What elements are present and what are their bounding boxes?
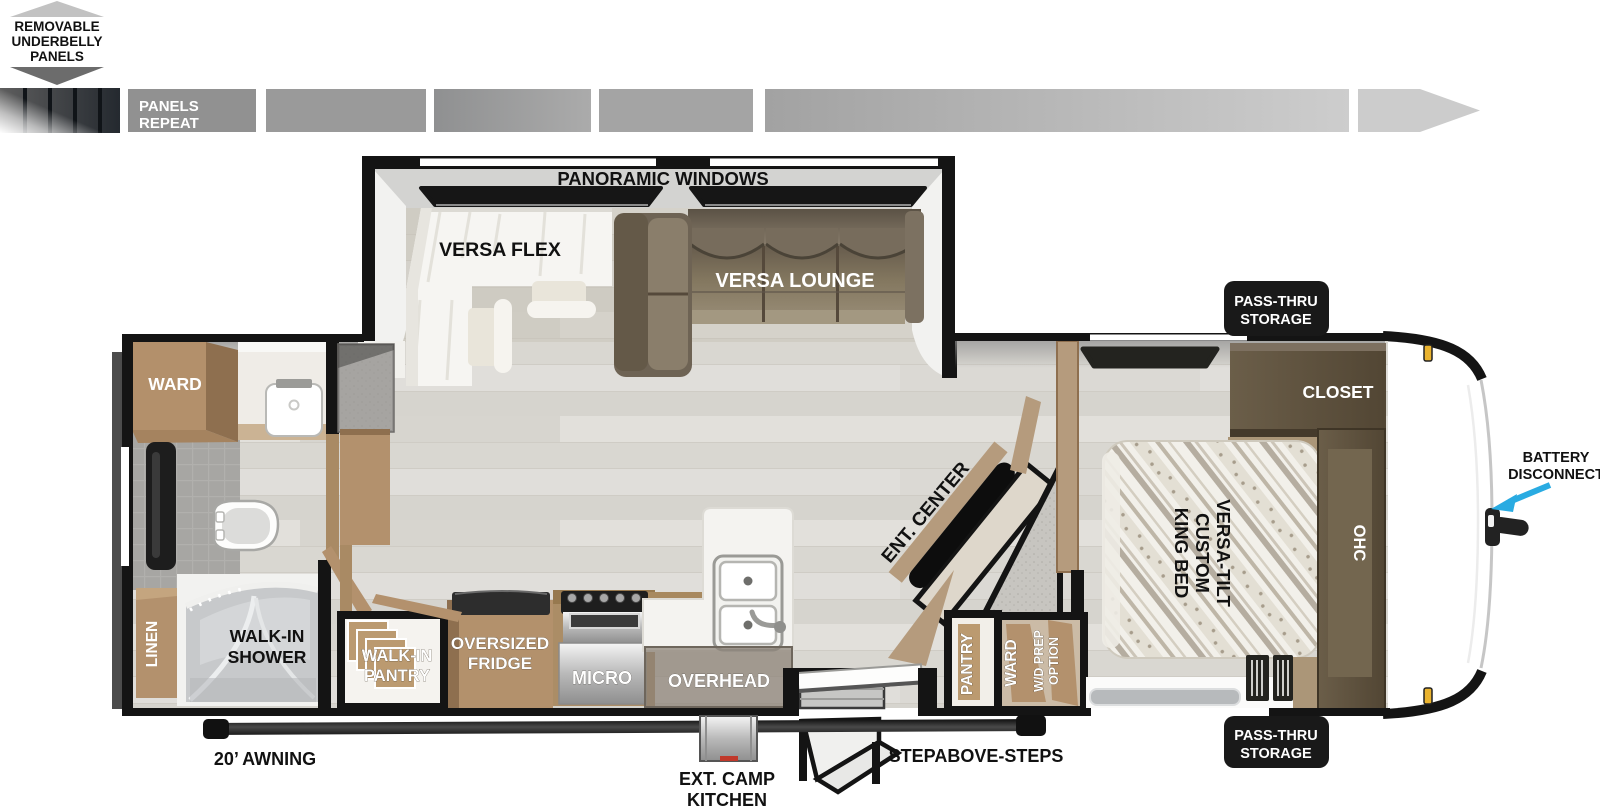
svg-text:BATTERY: BATTERY bbox=[1523, 450, 1590, 466]
svg-text:REPEAT: REPEAT bbox=[139, 115, 199, 132]
svg-text:PANORAMIC WINDOWS: PANORAMIC WINDOWS bbox=[557, 168, 768, 189]
svg-text:CUSTOM: CUSTOM bbox=[1192, 513, 1213, 593]
svg-text:W/D PREP: W/D PREP bbox=[1032, 630, 1046, 692]
svg-text:PASS-THRU: PASS-THRU bbox=[1234, 728, 1318, 744]
svg-text:STORAGE: STORAGE bbox=[1240, 312, 1312, 328]
svg-text:FRIDGE: FRIDGE bbox=[468, 654, 532, 673]
svg-text:CLOSET: CLOSET bbox=[1303, 382, 1374, 402]
svg-text:REMOVABLE: REMOVABLE bbox=[14, 19, 99, 34]
svg-text:MICRO: MICRO bbox=[572, 668, 632, 688]
svg-text:VERSA FLEX: VERSA FLEX bbox=[439, 239, 561, 261]
svg-text:SHOWER: SHOWER bbox=[228, 647, 307, 667]
svg-text:PANELS: PANELS bbox=[139, 98, 199, 115]
svg-text:VERSA-TILT: VERSA-TILT bbox=[1213, 499, 1234, 607]
svg-text:PASS-THRU: PASS-THRU bbox=[1234, 294, 1318, 310]
svg-text:KITCHEN: KITCHEN bbox=[687, 790, 767, 808]
svg-text:PANTRY: PANTRY bbox=[959, 632, 976, 695]
svg-text:UNDERBELLY: UNDERBELLY bbox=[11, 34, 102, 49]
svg-text:WALK-IN: WALK-IN bbox=[230, 626, 305, 646]
svg-text:WARD: WARD bbox=[1003, 639, 1020, 686]
svg-text:OVERHEAD: OVERHEAD bbox=[668, 671, 770, 691]
svg-text:STORAGE: STORAGE bbox=[1240, 746, 1312, 762]
svg-text:KING BED: KING BED bbox=[1171, 508, 1192, 598]
svg-text:OVERSIZED: OVERSIZED bbox=[451, 634, 549, 653]
svg-text:EXT. CAMP: EXT. CAMP bbox=[679, 769, 775, 789]
svg-text:OPTION: OPTION bbox=[1047, 637, 1061, 685]
svg-text:OHC: OHC bbox=[1350, 525, 1368, 562]
svg-text:WALK-IN: WALK-IN bbox=[362, 647, 433, 665]
svg-text:PANELS: PANELS bbox=[30, 49, 84, 64]
svg-text:LINEN: LINEN bbox=[144, 621, 161, 668]
svg-text:VERSA LOUNGE: VERSA LOUNGE bbox=[715, 270, 874, 292]
svg-text:20’ AWNING: 20’ AWNING bbox=[214, 749, 316, 769]
svg-text:WARD: WARD bbox=[148, 374, 201, 394]
svg-text:PANTRY: PANTRY bbox=[364, 667, 430, 685]
svg-text:DISCONNECT: DISCONNECT bbox=[1508, 467, 1600, 483]
svg-text:STEPABOVE-STEPS: STEPABOVE-STEPS bbox=[889, 746, 1064, 766]
